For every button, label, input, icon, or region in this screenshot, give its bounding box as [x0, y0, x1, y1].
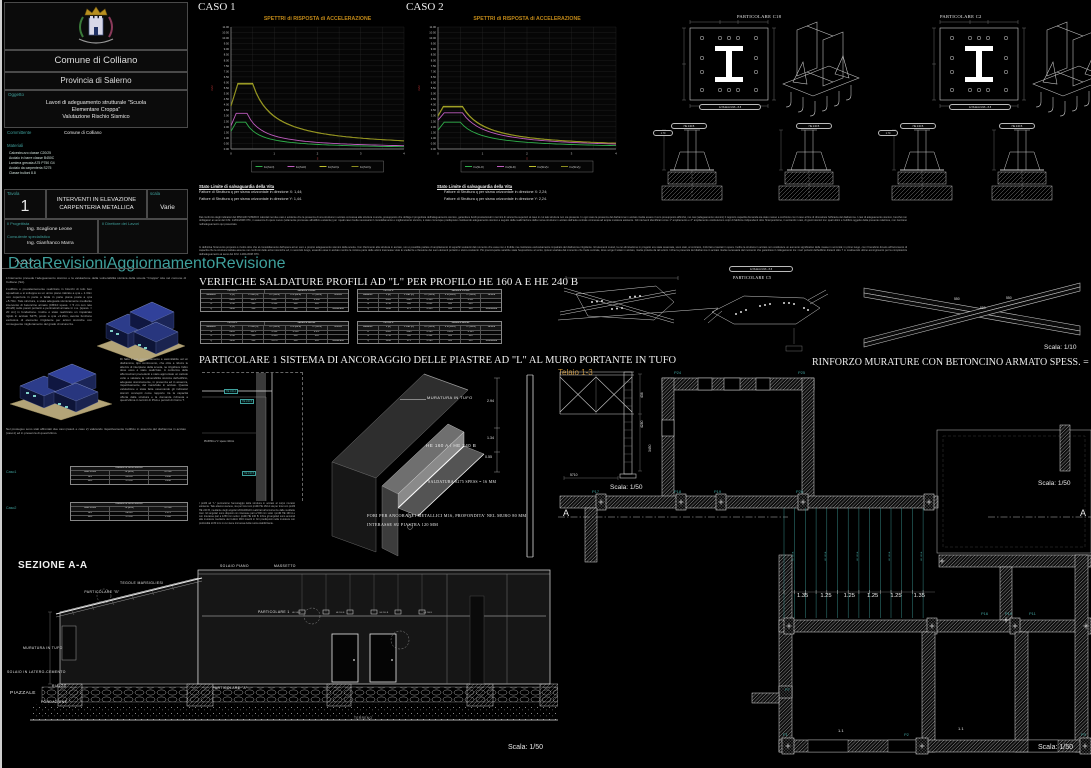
chip-he160a: HE 160 A	[224, 389, 238, 394]
table-cell: Soddisfatta	[327, 340, 348, 343]
elev-pill-3: HE 240 B	[900, 123, 936, 129]
list-item: 1.35	[914, 593, 925, 599]
svg-text:SPETTRI di RISPOSTA di ACCELER: SPETTRI di RISPOSTA di ACCELERAZIONE	[264, 16, 372, 22]
elev-pill-2: HE 240 B	[796, 123, 832, 129]
tavola-label: Tavola	[7, 191, 19, 196]
modello-3d-2	[6, 356, 116, 422]
brace-dim-1: 550	[954, 297, 960, 301]
scala-label: scala	[150, 191, 160, 196]
caso1-spectra-chart: 0.000.501.001.502.002.503.003.504.004.50…	[207, 11, 410, 182]
scala-value: Varie	[148, 204, 187, 211]
len-pill-2: 1.70	[878, 130, 898, 136]
table-cell: 405	[306, 340, 327, 343]
plan-node-p16: P16	[981, 611, 988, 616]
svg-text:Fo(SLO): Fo(SLO)	[264, 165, 274, 169]
table-cell: Ty	[201, 308, 221, 311]
svg-text:1.00: 1.00	[431, 136, 437, 140]
svg-text:0.00: 0.00	[224, 147, 230, 151]
consulente-label: Consulente specialistico	[7, 234, 50, 239]
svg-text:Fo(SLV)y: Fo(SLV)y	[360, 165, 372, 169]
svg-text:2: 2	[317, 152, 319, 156]
caso2-label: Caso2	[6, 506, 16, 510]
svg-text:8.00: 8.00	[431, 58, 437, 62]
risk-table-caso1: Indicatori di rischio sismicoStato Limit…	[70, 466, 188, 485]
svg-text:9.50: 9.50	[431, 42, 437, 46]
svg-text:10.00: 10.00	[429, 36, 436, 40]
svg-text:7.50: 7.50	[224, 64, 230, 68]
relazione-p4: Nel prosieguo sono stati affrontati due …	[6, 428, 186, 436]
comune-name: Comune di Colliano	[4, 50, 188, 72]
c5-heading: PARTICOLARE C5	[733, 275, 771, 280]
dim-294: 2.94	[487, 399, 494, 403]
chip-he240b-2: HE 240 B	[242, 471, 256, 476]
svg-text:8.50: 8.50	[431, 53, 437, 57]
progettista-label: Il Progettista	[7, 221, 29, 226]
table-cell: 400	[285, 340, 306, 343]
table-cell: 0.593	[419, 340, 440, 343]
plan-node-p7: P7	[785, 687, 790, 692]
plan-node-p10: P10	[1005, 611, 1012, 616]
table-cell: 475	[398, 308, 419, 311]
svg-text:4.50: 4.50	[431, 97, 437, 101]
caso1-note-lines: Fattore di Struttura q per sisma orizzon…	[199, 189, 404, 203]
plan-scala: Scala: 1/50	[1038, 744, 1073, 751]
svg-text:0.00: 0.00	[431, 147, 437, 151]
solaio-lc-label: SOLAIO IN LATERO-CEMENTO	[7, 670, 66, 674]
fondazione-label: FONDAZIONE	[41, 700, 67, 704]
svg-text:2.50: 2.50	[431, 119, 437, 123]
progettista-name: Ing. Scaglione Leone	[27, 227, 72, 232]
svg-text:8.50: 8.50	[224, 53, 230, 57]
svg-text:1.00: 1.00	[224, 136, 230, 140]
svg-text:Fo(SLD): Fo(SLD)	[506, 165, 516, 169]
provincia-name: Provincia di Salerno	[4, 72, 188, 90]
table-cell: 540	[242, 308, 263, 311]
svg-text:9.00: 9.00	[431, 47, 437, 51]
table-cell: 405	[460, 340, 481, 343]
list-item: 1.35	[797, 593, 808, 599]
table-cell: 405	[306, 308, 327, 311]
table-cell: 400	[439, 308, 460, 311]
dim-055: 0.55	[485, 455, 492, 459]
tegole-label: TEGOLE MARSIGLIESI	[120, 581, 164, 585]
weld-table-4: HE 240 BSaldatura lateralesaldatureF [N]…	[357, 321, 502, 344]
list-item: Fattore di Struttura q per sisma orizzon…	[199, 189, 404, 196]
svg-text:0: 0	[230, 152, 232, 156]
svg-text:9.00: 9.00	[224, 47, 230, 51]
c5-scala: Scala: 1/10	[1044, 344, 1077, 351]
weld-table-1: HE 160 ASaldatura frontalesaldatureF [N]…	[200, 289, 349, 312]
table-cell: 540	[242, 340, 263, 343]
modello-3d-1	[94, 286, 188, 364]
list-item: 1.25	[867, 593, 878, 599]
svg-text:5.50: 5.50	[224, 86, 230, 90]
relazione-p1: L'intervento prevede l'adeguamento sismi…	[6, 276, 186, 284]
table-cell: 400	[285, 308, 306, 311]
verifiche-heading: VERIFICHE SALDATURE PROFILI AD "L" PER P…	[199, 276, 578, 288]
svg-text:4.50: 4.50	[224, 97, 230, 101]
table-cell: 400	[439, 340, 460, 343]
plan-node-p1: P1	[783, 732, 788, 737]
list-item: 1.25	[844, 593, 855, 599]
svg-text:6.00: 6.00	[224, 80, 230, 84]
tavola-title-box: INTERVENTI IN ELEVAZIONE CARPENTERIA MET…	[46, 189, 147, 219]
table-cell: 1.308	[148, 516, 187, 519]
svg-text:HE 160 A: HE 160 A	[792, 551, 795, 561]
table-cell: 3296	[221, 308, 242, 311]
table-cell: Soddisfatta	[480, 340, 501, 343]
muratura-tufo-label: MURATURA IN TUFO	[427, 395, 473, 400]
table-cell: Soddisfatta	[327, 308, 348, 311]
svg-text:10.50: 10.50	[222, 31, 229, 35]
svg-text:0: 0	[437, 152, 439, 156]
svg-text:7.00: 7.00	[224, 69, 230, 73]
c18-heading: PARTICOLARE C18	[737, 14, 781, 19]
plan-node-p19: P19	[714, 489, 721, 494]
plan-node-p3: P3	[1081, 732, 1086, 737]
sezione-drawing	[2, 556, 558, 768]
dettagli-acciaio-drawing	[558, 2, 1091, 358]
svg-text:3.00: 3.00	[431, 114, 437, 118]
caso1-label: Caso1	[6, 470, 16, 474]
svg-text:3: 3	[360, 152, 362, 156]
committente-value: Comune di Colliano	[64, 130, 102, 135]
particolare1-pianta: HE 160 A HE 240 B HE 240 B PIASTRA a "L"…	[202, 372, 303, 501]
svg-text:10.50: 10.50	[429, 31, 436, 35]
oggetto-text: Lavori di adeguamento strutturale "Scuol…	[15, 100, 177, 121]
svg-text:11.00: 11.00	[429, 25, 436, 29]
svg-text:3.00: 3.00	[224, 114, 230, 118]
materiali-box: Materiali Calcestruzzo classe C20/25Acci…	[4, 142, 186, 188]
relazione-p3: Di fatto il suo comportamento è assimila…	[120, 358, 188, 424]
svg-text:4.00: 4.00	[224, 103, 230, 107]
table-cell: 0.876	[263, 340, 284, 343]
table-cell: SLD	[71, 516, 109, 519]
oggetto-box: Oggetto Lavori di adeguamento struttural…	[4, 90, 188, 128]
table-cell: Ty	[201, 340, 221, 343]
svg-text:s: s	[526, 157, 528, 161]
c5-bolts-pill: 12 Bulloni M16 - 8.8	[729, 266, 793, 272]
plan-node-p25: P25	[798, 370, 805, 375]
svg-text:Fo(SLO): Fo(SLO)	[474, 165, 484, 169]
list-item: 1.25	[820, 593, 831, 599]
svg-text:5.50: 5.50	[431, 86, 437, 90]
svg-text:0.50: 0.50	[224, 141, 230, 145]
massetto-label: MASSETTO	[274, 564, 296, 568]
svg-text:1.50: 1.50	[431, 130, 437, 134]
svg-text:HE 160 A: HE 160 A	[888, 551, 891, 561]
svg-text:9.50: 9.50	[224, 42, 230, 46]
list-item: HE 240 B	[336, 612, 345, 614]
list-item: HE 240 B	[380, 612, 389, 614]
svg-text:1.50: 1.50	[224, 130, 230, 134]
svg-text:7.00: 7.00	[431, 69, 437, 73]
oggetto-label: Oggetto	[8, 92, 24, 97]
section-marker-a-left: A	[563, 508, 569, 518]
table-cell: 5296	[378, 308, 399, 311]
weld-table-3: HE 160 ASaldatura lateralesaldatureF [N]…	[200, 321, 349, 344]
list-item: Lavori di adeguamento strutturale "Scuol…	[15, 100, 177, 107]
materiali-list: Calcestruzzo classe C20/25Acciaio in bar…	[9, 151, 55, 177]
plan-node-p17: P17	[592, 489, 599, 494]
pianta-rinforzi-drawing: HE 160 AHE 160 AHE 160 AHE 160 AHE 160 A	[558, 356, 1091, 768]
scala-box: scala Varie	[147, 189, 188, 219]
beam-labels-row: HE 240 BHE 240 BHE 240 BHE 240 B	[292, 612, 432, 614]
materiali-label: Materiali	[7, 143, 23, 148]
svg-text:Fo(SLV)x: Fo(SLV)x	[328, 165, 340, 169]
table-cell: 0.953	[419, 308, 440, 311]
elev-pill-4: HE 240 B	[999, 123, 1035, 129]
table-cell: 475	[398, 340, 419, 343]
svg-text:m/s²: m/s²	[210, 85, 214, 91]
svg-text:Fo(SLV)x: Fo(SLV)x	[538, 165, 550, 169]
svg-text:2.00: 2.00	[224, 125, 230, 129]
consulente-name: Ing. Gianfranco Marra	[27, 241, 74, 246]
list-item: Fattore di Struttura q per sisma orizzon…	[199, 196, 404, 203]
committente-label: Committente	[7, 130, 31, 135]
svg-text:6.50: 6.50	[224, 75, 230, 79]
risk-table-caso2: Indicatori di rischio sismicoStato Limit…	[70, 502, 188, 521]
svg-text:2.50: 2.50	[224, 119, 230, 123]
particolare-b-label: PARTICOLARE "B"	[82, 590, 122, 595]
svg-text:3.50: 3.50	[224, 108, 230, 112]
svg-text:HE 160 A: HE 160 A	[920, 551, 923, 561]
list-item: 1.25	[890, 593, 901, 599]
leader-muratura	[400, 399, 426, 400]
chip-he240b: HE 240 B	[240, 399, 254, 404]
room-dim-2: 1.1	[958, 726, 964, 731]
tavola-box: Tavola 1	[4, 189, 46, 219]
len-pill-1: 1.70	[653, 130, 673, 136]
list-item: Elementare Croppa"	[15, 107, 177, 114]
svg-text:5.00: 5.00	[431, 92, 437, 96]
list-item: HE 240 B	[423, 612, 432, 614]
muratura-label: MURATURA IN TUFO	[23, 646, 63, 650]
relazione-p2: L'edificio è prevalentemente realizzato …	[6, 288, 92, 366]
list-item: Classe bulloni 8.8	[9, 171, 55, 176]
terreno-label: TERRENO	[354, 716, 372, 720]
plan-node-p24: P24	[674, 370, 681, 375]
table-cell: 37.059	[109, 516, 148, 519]
table-cell: Ty	[358, 340, 378, 343]
svg-text:6.50: 6.50	[431, 75, 437, 79]
elev-pill-1: HE 240 B	[671, 123, 707, 129]
svg-text:3.50: 3.50	[431, 108, 437, 112]
caso1-note: Stato Limite di salvaguardia della Vita …	[199, 184, 404, 203]
plan-node-p2: P2	[904, 732, 909, 737]
plan-dim-row: 1.351.251.251.251.251.35	[797, 593, 925, 599]
particolare-1-label: PARTICOLARE 1	[258, 610, 290, 614]
section-marker-a-right: A	[1080, 508, 1086, 518]
list-item: Valutazione Rischio Sismico	[15, 114, 177, 121]
signature-icon	[14, 258, 36, 264]
table-cell: 5296	[378, 340, 399, 343]
logo-box	[4, 2, 188, 50]
piastra-label: PIASTRA a "L" spess.=10mm	[204, 441, 244, 444]
svg-text:7.50: 7.50	[431, 64, 437, 68]
titleblock-divider	[2, 268, 188, 269]
svg-text:Fo(SLD): Fo(SLD)	[296, 165, 306, 169]
svg-text:5.00: 5.00	[224, 92, 230, 96]
tavola-number: 1	[5, 198, 45, 216]
table-cell: 3296	[221, 340, 242, 343]
interasse-label: INTERASSE SU PIASTRA 120 MM	[367, 522, 438, 527]
plan-node-p18: P18	[674, 489, 681, 494]
svg-text:4: 4	[403, 152, 405, 156]
particolare-a-label: PARTICOLARE "A"	[207, 686, 253, 691]
table-cell: 1.11	[263, 308, 284, 311]
particolare1-nota: I profili ad "L" permettono l'ancoraggio…	[199, 502, 295, 554]
c2-heading: PARTICOLARE C2	[940, 14, 982, 19]
svg-text:m/s²: m/s²	[417, 85, 421, 91]
svg-text:1: 1	[482, 152, 484, 156]
brace-dim-3: 550	[1006, 296, 1012, 300]
c18-bolts-pill: 12 Bulloni M16 - 8.8	[699, 104, 761, 110]
list-item: HE 240 B	[292, 612, 301, 614]
table-cell: SLD	[71, 480, 109, 483]
table-cell: Ty	[358, 308, 378, 311]
svg-text:1: 1	[273, 152, 275, 156]
svg-text:11.00: 11.00	[222, 25, 229, 29]
c2-bolts-pill: 12 Bulloni M16 - 8.8	[949, 104, 1011, 110]
comune-logo-icon	[63, 5, 129, 47]
room-dim-1: 1.1	[838, 728, 844, 733]
svg-text:4.00: 4.00	[431, 103, 437, 107]
plan-node-p11: P11	[1029, 611, 1036, 616]
direttore-label: Il Direttore dei Lavori	[102, 221, 139, 226]
table-cell: 0.938	[148, 480, 187, 483]
plan-node-p20: P20	[796, 489, 803, 494]
weld-table-2: HE 240 BSaldatura frontalesaldatureF [N]…	[357, 289, 502, 312]
svg-text:2.00: 2.00	[431, 125, 437, 129]
sezione-heading: SEZIONE A-A	[18, 560, 88, 571]
svg-text:0.50: 0.50	[431, 141, 437, 145]
svg-text:10.00: 10.00	[222, 36, 229, 40]
rialzo-label: RIALZO	[52, 684, 67, 688]
progettista-box: Il Progettista Ing. Scaglione Leone Cons…	[4, 219, 98, 254]
table-cell: 405	[460, 308, 481, 311]
svg-text:8.00: 8.00	[224, 58, 230, 62]
solaio-piano-label: SOLAIO PIANO	[220, 564, 249, 568]
dim-134: 1.34	[487, 436, 494, 440]
drawing-sheet: Comune di Colliano Provincia di Salerno …	[0, 0, 1091, 768]
piazzale-label: PIAZZALE	[10, 691, 36, 696]
tavola-title: INTERVENTI IN ELEVAZIONE CARPENTERIA MET…	[47, 197, 146, 213]
svg-text:s: s	[317, 157, 319, 161]
svg-text:6.00: 6.00	[431, 80, 437, 84]
direttore-box: Il Direttore dei Lavori	[98, 219, 188, 254]
list-item: Revisioni	[42, 255, 107, 263]
svg-text:2: 2	[526, 152, 528, 156]
brace-dim-2: 550	[980, 306, 986, 310]
sezione-scala: Scala: 1/50	[508, 744, 543, 751]
committente-row: Committente Comune di Colliano	[4, 128, 186, 141]
table-cell: Soddisfatta	[480, 308, 501, 311]
profili-label: HE 160 A / HE 240 B	[426, 443, 476, 448]
svg-text:HE 160 A: HE 160 A	[856, 551, 859, 561]
svg-text:HE 160 A: HE 160 A	[824, 551, 827, 561]
table-cell: 37.059	[109, 480, 148, 483]
